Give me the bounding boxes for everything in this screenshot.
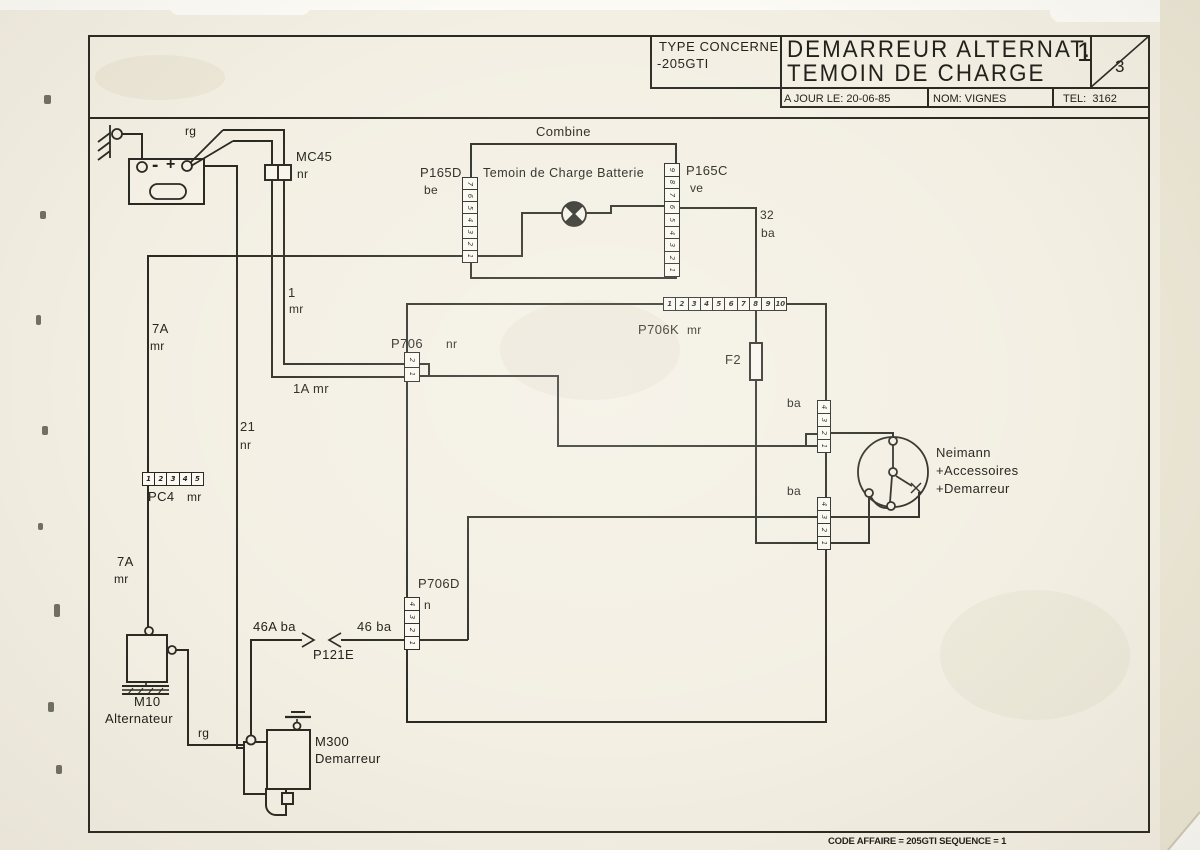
- p121e-label: P121E: [313, 648, 354, 661]
- pc4-label: PC4: [148, 490, 175, 503]
- starter-name: Demarreur: [315, 752, 381, 765]
- starter-ground-icon: [247, 712, 312, 745]
- p706d-label: P706D: [418, 577, 460, 590]
- neimann-accessoires-label: +Accessoires: [936, 464, 1018, 477]
- wire-label-1-color: mr: [289, 303, 304, 315]
- p165d-color: be: [424, 184, 438, 196]
- wire-label-7a-bottom: 7A: [117, 555, 134, 568]
- combine-label: Combine: [536, 125, 591, 138]
- wire-label-7a-top-color: mr: [150, 340, 165, 352]
- wire-label-32: 32: [760, 209, 774, 221]
- p706k-label: P706K: [638, 323, 679, 336]
- wire-label-21: 21: [240, 420, 255, 433]
- page-diagonal: [1090, 36, 1149, 88]
- starter-code: M300: [315, 735, 349, 748]
- wire-label-1a: 1A mr: [293, 382, 329, 395]
- fuse-label: F2: [725, 353, 741, 366]
- neimann-label: Neimann: [936, 446, 991, 459]
- p706-label: P706: [391, 337, 423, 350]
- p165c-label: P165C: [686, 164, 728, 177]
- schematic-sheet: TYPE CONCERNE -205GTI DEMARREUR ALTERNAT…: [0, 0, 1200, 850]
- wire-label-46: 46 ba: [357, 620, 392, 633]
- battery-plus-sign: +: [166, 157, 175, 173]
- ba-lower-label: ba: [787, 485, 801, 497]
- battery-minus-sign: -: [152, 156, 158, 175]
- wire-label-7a-top: 7A: [152, 322, 169, 335]
- pc4-color: mr: [187, 491, 202, 503]
- ba-upper-label: ba: [787, 397, 801, 409]
- splice-icon: [302, 633, 341, 647]
- lamp-label: Temoin de Charge Batterie: [483, 167, 644, 180]
- wire-label-21-color: nr: [240, 439, 251, 451]
- ground-icon: [98, 125, 122, 160]
- corner-fold: [1168, 812, 1200, 850]
- alternator-name: Alternateur: [105, 712, 173, 725]
- wire-label-7a-bottom-color: mr: [114, 573, 129, 585]
- wire-label-1: 1: [288, 286, 296, 299]
- p165c-color: ve: [690, 182, 703, 194]
- ignition-switch-icon: [858, 437, 928, 510]
- mc45-color: nr: [297, 168, 308, 180]
- alternator-code: M10: [134, 695, 161, 708]
- schematic-symbols: [0, 0, 1200, 850]
- wire-label-32-color: ba: [761, 227, 775, 239]
- p706k-color: mr: [687, 324, 702, 336]
- alternator-terminals: [122, 627, 176, 694]
- wire-label-rg-bottom: rg: [198, 727, 209, 739]
- wire-label-46a: 46A ba: [253, 620, 296, 633]
- neimann-demarreur-label: +Demarreur: [936, 482, 1010, 495]
- charge-lamp-icon: [562, 202, 586, 226]
- mc45-label: MC45: [296, 150, 332, 163]
- p706d-color: n: [424, 599, 431, 611]
- p165d-label: P165D: [420, 166, 462, 179]
- p706-color: nr: [446, 338, 457, 350]
- wire-label-rg-top: rg: [185, 125, 196, 137]
